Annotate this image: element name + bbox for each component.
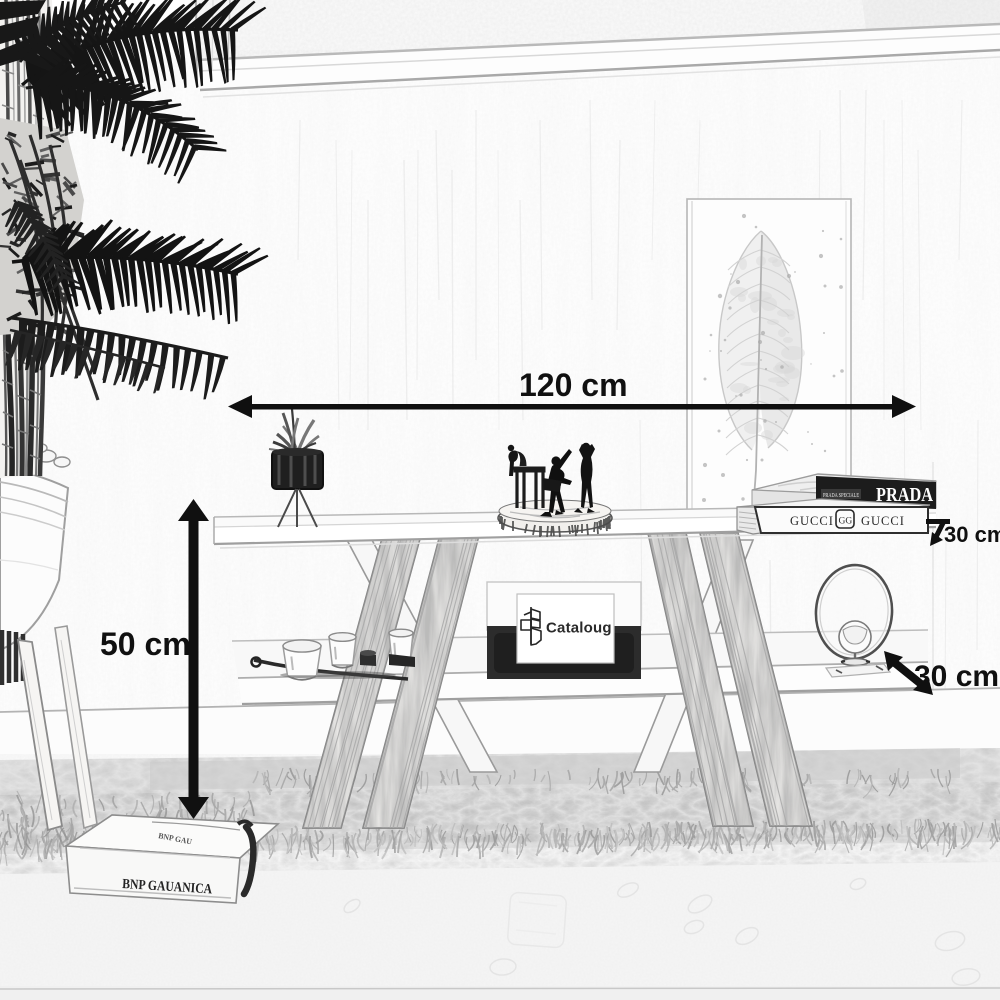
- svg-text:GG: GG: [839, 517, 853, 527]
- svg-text:GUCCI: GUCCI: [790, 514, 834, 528]
- svg-text:120 cm: 120 cm: [519, 367, 628, 403]
- svg-text:Cataloug: Cataloug: [546, 620, 612, 637]
- svg-text:PRADA SPECIALE: PRADA SPECIALE: [823, 492, 859, 499]
- svg-text:GUCCI: GUCCI: [861, 514, 905, 528]
- svg-text:30 cm: 30 cm: [944, 522, 1000, 547]
- svg-text:50 cm: 50 cm: [100, 626, 191, 662]
- svg-text:30 cm: 30 cm: [914, 660, 999, 693]
